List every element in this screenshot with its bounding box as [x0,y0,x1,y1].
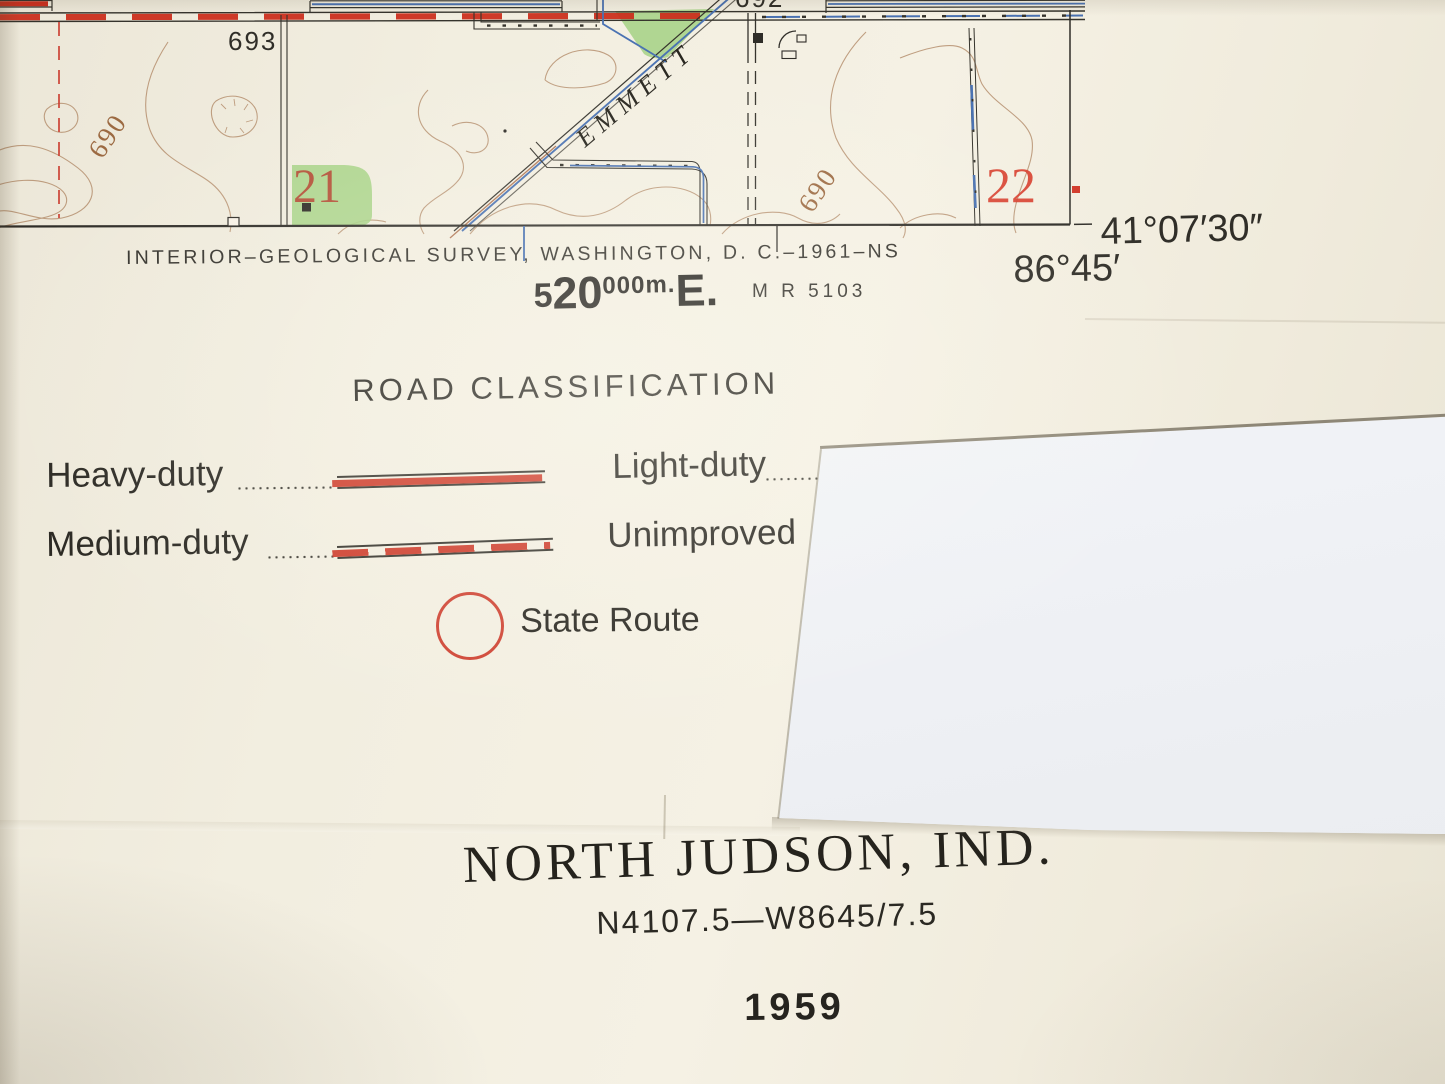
legend-label-medium-duty: Medium-duty [46,522,249,565]
spot-elevation-692: 692 [735,0,784,13]
state-route-symbol [436,592,504,660]
longitude-label: 86°45′ [1013,247,1121,292]
medium-duty-road-symbol [337,538,553,559]
contour-label-690-right: 690 [792,162,843,217]
legend-label-heavy-duty: Heavy-duty [46,454,223,496]
roads [0,0,1085,22]
heavy-duty-road-symbol [337,470,545,489]
woodland-areas [292,9,714,227]
ditch-lane [969,28,980,226]
leader-dots [236,486,336,490]
legend-label-state-route: State Route [520,600,700,641]
contour-label-690-left: 690 [82,108,133,163]
spot-elevation-693: 693 [228,26,277,56]
leader-dots [266,555,334,559]
map-fragment: 693 692 690 690 EMMETT 21 22 [0,0,1100,270]
paper-crease [0,820,800,836]
section-number-22: 22 [986,157,1036,213]
leader-dots [764,477,822,481]
section-number-21: 21 [293,160,341,213]
paper-crease [1085,318,1445,324]
latitude-label: 41°07′30″ [1100,207,1264,254]
legend-label-unimproved: Unimproved [607,513,796,556]
grid-easting-suffix: 000m. [602,271,676,300]
grid-easting-principal: 20 [552,267,603,319]
reference-number: M R 5103 [752,281,866,303]
grid-easting-prefix: 5 [533,277,553,315]
grid-easting-label: 520000m.E. [533,264,719,320]
contour-lines [0,32,1032,238]
legend-label-light-duty: Light-duty [612,444,766,487]
grid-easting-direction: E. [675,264,719,316]
street-label-emmett: EMMETT [569,37,700,154]
map-year: 1959 [744,986,845,1030]
legend-title: ROAD CLASSIFICATION [352,366,779,409]
topo-map-photo: 693 692 690 690 EMMETT 21 22 INTERIOR–GE… [0,0,1445,1084]
quadrangle-designation: N4107.5—W8645/7.5 [596,895,939,942]
